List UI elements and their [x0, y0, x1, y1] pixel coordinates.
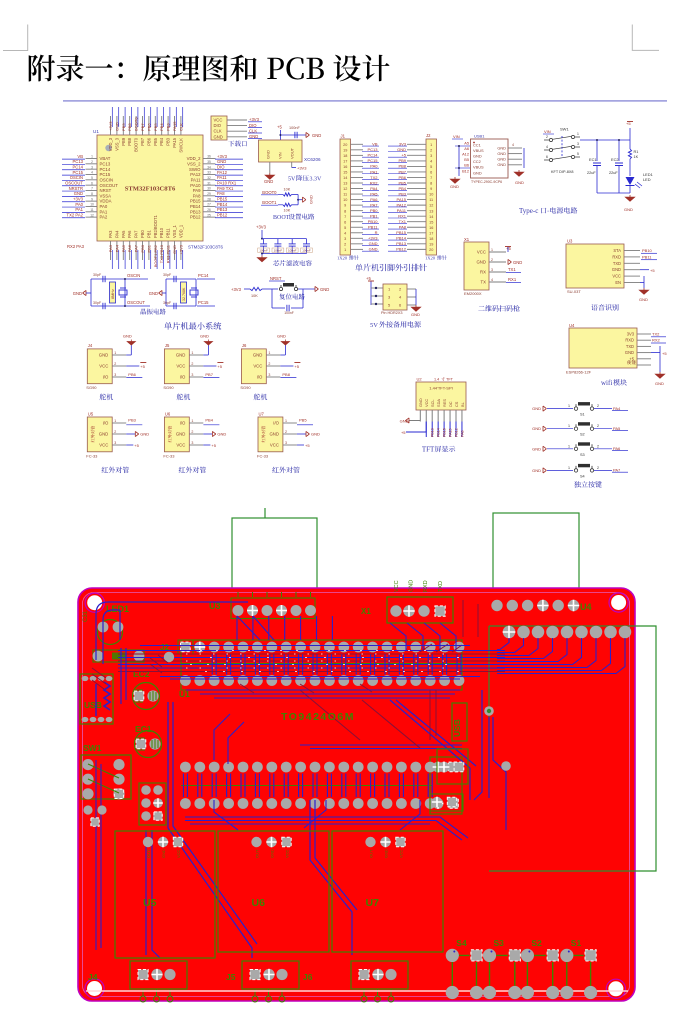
svg-text:GND: GND — [309, 195, 314, 204]
svg-text:+5: +5 — [140, 364, 145, 369]
svg-text:GND: GND — [476, 260, 486, 265]
svg-text:DIO: DIO — [214, 123, 222, 128]
svg-text:U6: U6 — [165, 412, 171, 417]
svg-text:PA10: PA10 — [190, 183, 201, 188]
svg-text:32: 32 — [207, 176, 211, 180]
svg-text:PA15: PA15 — [449, 428, 453, 437]
svg-text:7: 7 — [430, 176, 432, 180]
svg-text:26: 26 — [207, 208, 211, 212]
svg-text:I/O: I/O — [257, 375, 263, 380]
svg-text:4: 4 — [512, 143, 514, 147]
svg-text:GND: GND — [277, 334, 286, 339]
svg-text:GND: GND — [497, 162, 506, 167]
svg-text:2: 2 — [114, 362, 116, 366]
svg-text:6: 6 — [546, 155, 548, 159]
svg-text:VSSA: VSSA — [100, 193, 112, 198]
svg-text:GND: GND — [161, 849, 166, 858]
svg-text:18: 18 — [429, 237, 433, 241]
svg-text:I/O: I/O — [103, 421, 109, 426]
svg-text:VCC: VCC — [253, 364, 262, 369]
svg-text:19: 19 — [429, 242, 433, 246]
svg-text:J5: J5 — [165, 343, 170, 348]
svg-text:EM2000X: EM2000X — [464, 291, 482, 296]
svg-text:TFT: TFT — [446, 378, 454, 382]
svg-text:100nF: 100nF — [288, 249, 297, 253]
svg-text:VCC: VCC — [176, 849, 181, 858]
svg-text:12: 12 — [90, 213, 94, 217]
svg-text:PA3: PA3 — [108, 230, 113, 238]
svg-text:PB15: PB15 — [190, 199, 201, 204]
svg-text:VCC: VCC — [176, 443, 185, 448]
svg-text:+3V3: +3V3 — [73, 197, 84, 202]
svg-text:J4: J4 — [88, 972, 98, 982]
svg-text:+5: +5 — [366, 276, 371, 281]
svg-text:OUT: OUT — [146, 849, 151, 858]
svg-text:SW1: SW1 — [83, 743, 102, 753]
svg-text:GND: GND — [99, 353, 109, 358]
svg-text:12: 12 — [429, 204, 433, 208]
svg-text:STA: STA — [613, 248, 621, 253]
svg-text:PA1: PA1 — [75, 207, 83, 212]
svg-text:GND: GND — [532, 446, 541, 451]
svg-text:PA5: PA5 — [121, 230, 126, 238]
svg-text:36: 36 — [207, 155, 211, 159]
svg-text:PB8: PB8 — [127, 137, 132, 145]
svg-text:PC14: PC14 — [73, 165, 84, 170]
svg-text:100nF: 100nF — [302, 249, 311, 253]
svg-text:PA11: PA11 — [217, 175, 227, 180]
svg-text:PA9: PA9 — [193, 188, 201, 193]
svg-text:100nF: 100nF — [289, 126, 300, 130]
svg-text:GND: GND — [515, 180, 524, 185]
svg-text:1: 1 — [568, 444, 570, 448]
svg-text:PB13: PB13 — [190, 209, 201, 214]
svg-text:VCC: VCC — [176, 364, 185, 369]
svg-text:FC-33: FC-33 — [257, 454, 269, 459]
svg-text:PA7: PA7 — [134, 230, 139, 238]
svg-text:VCC: VCC — [99, 443, 108, 448]
svg-text:2: 2 — [91, 160, 93, 164]
svg-text:PB11: PB11 — [642, 254, 652, 259]
svg-text:12: 12 — [343, 187, 347, 191]
svg-text:VSS_1: VSS_1 — [172, 225, 177, 238]
svg-text:B5: B5 — [464, 157, 469, 162]
svg-text:PA15: PA15 — [172, 137, 177, 147]
svg-text:GND: GND — [73, 291, 82, 296]
svg-text:PB8: PB8 — [282, 372, 290, 377]
svg-text:30pF: 30pF — [163, 301, 172, 305]
svg-text:2: 2 — [430, 148, 432, 152]
svg-text:I/O: I/O — [180, 421, 186, 426]
svg-text:1: 1 — [568, 404, 570, 408]
svg-text:J6: J6 — [303, 972, 313, 982]
svg-text:GND: GND — [639, 297, 648, 302]
svg-text:J5: J5 — [226, 972, 236, 982]
svg-text:PB7: PB7 — [140, 137, 145, 145]
svg-text:FC-33: FC-33 — [163, 454, 175, 459]
svg-text:U6: U6 — [252, 897, 266, 909]
svg-text:+5: +5 — [211, 443, 216, 448]
svg-text:VCC: VCC — [214, 118, 223, 123]
svg-text:18: 18 — [343, 154, 347, 158]
svg-text:VB: VB — [77, 154, 83, 159]
svg-text:TX2 PA2: TX2 PA2 — [67, 213, 84, 218]
svg-text:3: 3 — [344, 237, 346, 241]
svg-text:+3V3: +3V3 — [231, 287, 242, 292]
svg-text:U1: U1 — [179, 689, 190, 699]
svg-text:S2: S2 — [531, 938, 542, 948]
svg-text:ESP8266-12F: ESP8266-12F — [566, 370, 592, 375]
svg-text:PB11: PB11 — [166, 228, 171, 238]
svg-text:PA10 RX1: PA10 RX1 — [217, 181, 237, 186]
svg-text:CC2: CC2 — [473, 159, 481, 164]
svg-text:I/O: I/O — [103, 375, 109, 380]
svg-text:CC1: CC1 — [473, 142, 481, 147]
svg-text:8MHz: 8MHz — [111, 289, 115, 299]
svg-text:GND: GND — [532, 468, 541, 473]
svg-text:SG90: SG90 — [86, 385, 97, 390]
svg-text:1: 1 — [91, 155, 93, 159]
svg-text:EC1: EC1 — [589, 157, 597, 162]
svg-text:20: 20 — [343, 143, 347, 147]
svg-text:USB1: USB1 — [474, 134, 485, 139]
svg-text:PB6: PB6 — [146, 137, 151, 145]
svg-text:PA8: PA8 — [460, 430, 464, 437]
svg-text:GND: GND — [176, 432, 186, 437]
svg-text:PC13: PC13 — [100, 161, 111, 166]
svg-text:S1: S1 — [571, 938, 582, 948]
svg-text:1.44'TFT-SPI: 1.44'TFT-SPI — [429, 386, 452, 391]
svg-text:14: 14 — [429, 215, 433, 219]
svg-text:TXD: TXD — [613, 261, 621, 266]
svg-text:+5: +5 — [650, 268, 655, 273]
svg-text:PB13: PB13 — [431, 428, 435, 437]
svg-text:PB9: PB9 — [121, 137, 126, 145]
svg-text:VBAT: VBAT — [100, 156, 111, 161]
svg-text:3: 3 — [191, 373, 193, 377]
svg-text:TX2: TX2 — [652, 332, 660, 337]
svg-text:28: 28 — [207, 197, 211, 201]
svg-text:I/O: I/O — [180, 375, 186, 380]
svg-text:PB10: PB10 — [642, 248, 653, 253]
svg-text:U4: U4 — [569, 323, 575, 328]
svg-text:VDD_1: VDD_1 — [178, 224, 183, 238]
svg-text:33: 33 — [207, 171, 211, 175]
svg-text:GND: GND — [217, 432, 226, 437]
svg-text:TFT: TFT — [422, 446, 435, 454]
svg-text:3: 3 — [114, 373, 116, 377]
svg-text:22uF: 22uF — [587, 171, 596, 175]
svg-text:14: 14 — [343, 176, 347, 180]
svg-text:PB3: PB3 — [128, 418, 136, 423]
svg-text:PA4: PA4 — [114, 230, 119, 238]
svg-text:VIN: VIN — [544, 129, 551, 134]
svg-text:1: 1 — [568, 466, 570, 470]
svg-text:+5: +5 — [305, 443, 310, 448]
svg-text:TXD: TXD — [626, 344, 634, 349]
svg-text:GND: GND — [473, 170, 482, 175]
svg-text:2: 2 — [191, 362, 193, 366]
svg-text:RX2 PA3: RX2 PA3 — [67, 244, 85, 249]
svg-text:GND: GND — [625, 350, 634, 355]
svg-text:GND: GND — [655, 381, 664, 386]
svg-text:B6: B6 — [464, 163, 469, 168]
svg-text:BL: BL — [460, 401, 465, 407]
svg-text:PA12: PA12 — [217, 170, 228, 175]
svg-text:7: 7 — [91, 187, 93, 191]
svg-text:U2: U2 — [417, 377, 423, 382]
svg-text:DC: DC — [448, 401, 453, 407]
svg-text:2: 2 — [597, 424, 599, 428]
svg-text:9: 9 — [344, 204, 346, 208]
svg-text:GND: GND — [99, 432, 109, 437]
svg-text:13: 13 — [429, 209, 433, 213]
svg-text:GND: GND — [123, 334, 132, 339]
svg-text:1: 1 — [285, 419, 287, 423]
svg-text:VDD_3: VDD_3 — [108, 137, 113, 151]
svg-text:J4: J4 — [88, 343, 93, 348]
svg-text:GND: GND — [74, 191, 83, 196]
svg-text:10: 10 — [429, 193, 433, 197]
svg-text:+5: +5 — [277, 125, 282, 130]
svg-text:+5: +5 — [662, 351, 667, 356]
svg-text:+5: +5 — [217, 364, 222, 369]
svg-text:CS: CS — [454, 401, 459, 407]
svg-text:J2: J2 — [426, 133, 431, 138]
svg-text:VIN: VIN — [278, 152, 283, 159]
svg-text:PB12: PB12 — [190, 215, 201, 220]
svg-text:1: 1 — [268, 351, 270, 355]
svg-text:10K: 10K — [284, 209, 291, 213]
svg-text:OSCIN: OSCIN — [100, 177, 114, 182]
svg-text:C31: C31 — [83, 610, 89, 622]
svg-text:9: 9 — [91, 197, 93, 201]
svg-text:GND: GND — [473, 154, 482, 159]
svg-text:10: 10 — [90, 203, 94, 207]
svg-text:8: 8 — [344, 209, 346, 213]
svg-text:1: 1 — [191, 419, 193, 423]
svg-text:4: 4 — [546, 145, 548, 149]
svg-text:3: 3 — [577, 142, 579, 146]
svg-text:RES: RES — [442, 399, 447, 407]
svg-text:VDD_2: VDD_2 — [187, 156, 201, 161]
svg-text:VCC: VCC — [270, 443, 279, 448]
svg-text:4: 4 — [430, 159, 432, 163]
svg-text:KFT DIP-8X8: KFT DIP-8X8 — [551, 170, 574, 174]
svg-text:11: 11 — [90, 208, 94, 212]
svg-text:U7: U7 — [366, 897, 380, 909]
svg-text:17: 17 — [343, 159, 347, 163]
svg-text:2: 2 — [491, 258, 493, 262]
svg-text:6: 6 — [91, 181, 93, 185]
svg-text:27: 27 — [207, 203, 211, 207]
svg-text:2: 2 — [191, 430, 193, 434]
svg-text:+5: +5 — [134, 443, 139, 448]
svg-text:EC2: EC2 — [611, 157, 619, 162]
svg-text:R1: R1 — [634, 150, 639, 154]
svg-text:PB5: PB5 — [299, 418, 307, 423]
svg-text:2: 2 — [114, 430, 116, 434]
svg-text:31: 31 — [207, 181, 211, 185]
svg-text:PB0: PB0 — [140, 230, 145, 238]
svg-text:1: 1 — [191, 351, 193, 355]
svg-text:GND: GND — [532, 426, 541, 431]
svg-text:PB14: PB14 — [437, 428, 441, 437]
svg-text:GND: GND — [200, 334, 209, 339]
svg-text:10: 10 — [343, 198, 347, 202]
svg-text:U7: U7 — [259, 412, 265, 417]
svg-text:2: 2 — [597, 444, 599, 448]
svg-text:RXD: RXD — [612, 254, 621, 259]
svg-text:SG90: SG90 — [163, 385, 174, 390]
svg-text:GND: GND — [214, 134, 223, 139]
svg-text:GND: GND — [497, 145, 506, 150]
svg-text:SU-03T: SU-03T — [567, 289, 581, 294]
svg-text:OUT: OUT — [255, 849, 260, 858]
svg-text:J6: J6 — [242, 343, 247, 348]
svg-text:PB15: PB15 — [443, 428, 447, 437]
svg-text:VBUS: VBUS — [473, 148, 484, 153]
svg-text:30pF: 30pF — [93, 301, 102, 305]
svg-text:VCC: VCC — [612, 274, 621, 279]
svg-text:3: 3 — [268, 373, 270, 377]
svg-text:GND: GND — [497, 151, 506, 156]
svg-text:Pin HDR2X3: Pin HDR2X3 — [381, 311, 403, 315]
svg-text:VCC: VCC — [399, 849, 404, 858]
svg-text:PB15: PB15 — [217, 197, 228, 202]
svg-text:OSCOUT: OSCOUT — [65, 181, 83, 186]
svg-text:1: 1 — [568, 424, 570, 428]
svg-text:PB12: PB12 — [217, 213, 228, 218]
svg-text:1K: 1K — [634, 155, 639, 159]
svg-text:13: 13 — [343, 182, 347, 186]
svg-text:Type-c: Type-c — [519, 207, 538, 215]
svg-text:PB12: PB12 — [455, 428, 459, 437]
svg-text:32.768K: 32.768K — [182, 287, 186, 301]
svg-text:SDA: SDA — [436, 399, 441, 407]
svg-text:VCC: VCC — [394, 580, 400, 592]
svg-text:GND: GND — [532, 406, 541, 411]
svg-text:U5: U5 — [88, 412, 94, 417]
svg-text:1X20: 1X20 — [425, 256, 436, 261]
svg-text:4: 4 — [344, 231, 346, 235]
svg-text:I/O: I/O — [273, 421, 279, 426]
svg-text:16: 16 — [429, 226, 433, 230]
svg-text:PB3: PB3 — [166, 137, 171, 145]
svg-text:X1: X1 — [464, 237, 470, 242]
svg-text:BOOT: BOOT — [273, 215, 290, 221]
svg-text:SW1: SW1 — [560, 127, 569, 132]
svg-text:GND: GND — [266, 150, 271, 159]
svg-text:1: 1 — [114, 351, 116, 355]
svg-text:3: 3 — [430, 154, 432, 158]
svg-text:35: 35 — [207, 160, 211, 164]
svg-text:GND: GND — [513, 260, 522, 265]
svg-text:GND: GND — [264, 179, 273, 184]
svg-text:LED: LED — [643, 177, 651, 182]
svg-text:15: 15 — [343, 171, 347, 175]
svg-text:U5: U5 — [143, 897, 157, 909]
svg-text:A6: A6 — [464, 146, 469, 151]
svg-text:RXD: RXD — [423, 580, 429, 592]
svg-text:PB2/BOOT1: PB2/BOOT1 — [153, 215, 158, 238]
svg-text:S3: S3 — [494, 938, 505, 948]
svg-text:S1: S1 — [580, 413, 585, 417]
svg-text:SCL: SCL — [430, 399, 435, 407]
svg-text:5V: 5V — [370, 322, 378, 329]
svg-text:PB1: PB1 — [146, 230, 151, 238]
svg-text:VBUS: VBUS — [473, 165, 484, 170]
svg-text:2: 2 — [285, 430, 287, 434]
svg-text:VCC: VCC — [477, 250, 486, 255]
svg-text:2: 2 — [268, 362, 270, 366]
svg-text:TYPEC-290C-9CP6: TYPEC-290C-9CP6 — [471, 180, 502, 184]
svg-text:A5: A5 — [464, 140, 469, 145]
svg-text:GND: GND — [269, 432, 279, 437]
svg-text:VCC: VCC — [99, 364, 108, 369]
svg-text:STM32F103C8T6: STM32F103C8T6 — [188, 245, 223, 250]
svg-text:PB14: PB14 — [190, 204, 201, 209]
svg-text:2: 2 — [597, 404, 599, 408]
svg-text:U1: U1 — [93, 129, 99, 134]
svg-text:3: 3 — [114, 441, 116, 445]
svg-text:PC15: PC15 — [73, 170, 84, 175]
svg-text:22uF: 22uF — [609, 171, 618, 175]
svg-text:OUT: OUT — [369, 849, 374, 858]
svg-text:1: 1 — [491, 248, 493, 252]
svg-text:100nF: 100nF — [274, 249, 283, 253]
svg-text:PB14: PB14 — [217, 202, 228, 207]
svg-text:OSCOUT: OSCOUT — [127, 300, 145, 305]
svg-text:wifi: wifi — [601, 379, 612, 387]
svg-text:S2: S2 — [580, 433, 585, 437]
svg-text:STM32F103C8T6: STM32F103C8T6 — [125, 186, 176, 193]
svg-text:1: 1 — [577, 132, 579, 136]
svg-text:PC14: PC14 — [100, 167, 111, 172]
svg-text:GND: GND — [409, 580, 415, 592]
svg-text:11: 11 — [429, 198, 433, 202]
svg-text:OSCIN: OSCIN — [70, 175, 83, 180]
svg-text:BOOT1: BOOT1 — [262, 200, 277, 205]
svg-text:TX1: TX1 — [508, 267, 516, 272]
svg-text:BOOT0: BOOT0 — [134, 137, 139, 152]
svg-text:3: 3 — [191, 441, 193, 445]
svg-text:NRST: NRST — [100, 188, 112, 193]
svg-text:8: 8 — [91, 192, 93, 196]
svg-text:PA2: PA2 — [100, 215, 108, 220]
svg-text:S4: S4 — [580, 474, 585, 478]
svg-text:100nF: 100nF — [284, 311, 294, 315]
svg-text:5: 5 — [430, 165, 432, 169]
svg-text:PA11: PA11 — [191, 177, 201, 182]
svg-text:SWIO: SWIO — [189, 167, 201, 172]
svg-text:6: 6 — [344, 220, 346, 224]
svg-text:OSCOUT: OSCOUT — [100, 183, 119, 188]
svg-text:+3V3: +3V3 — [297, 166, 307, 171]
svg-text:30pF: 30pF — [163, 273, 172, 277]
svg-text:PA8: PA8 — [193, 193, 201, 198]
svg-text:RX: RX — [480, 270, 486, 275]
svg-text:RXD: RXD — [625, 338, 634, 343]
svg-text:VDDA: VDDA — [100, 199, 112, 204]
svg-text:USB: USB — [84, 700, 102, 710]
svg-text:GND: GND — [217, 159, 226, 164]
svg-text:GND: GND — [149, 291, 158, 296]
svg-text:+5: +5 — [294, 364, 299, 369]
svg-text:S3: S3 — [580, 453, 585, 457]
svg-text:BOOT0: BOOT0 — [262, 190, 277, 195]
svg-text:DIO: DIO — [217, 165, 225, 170]
